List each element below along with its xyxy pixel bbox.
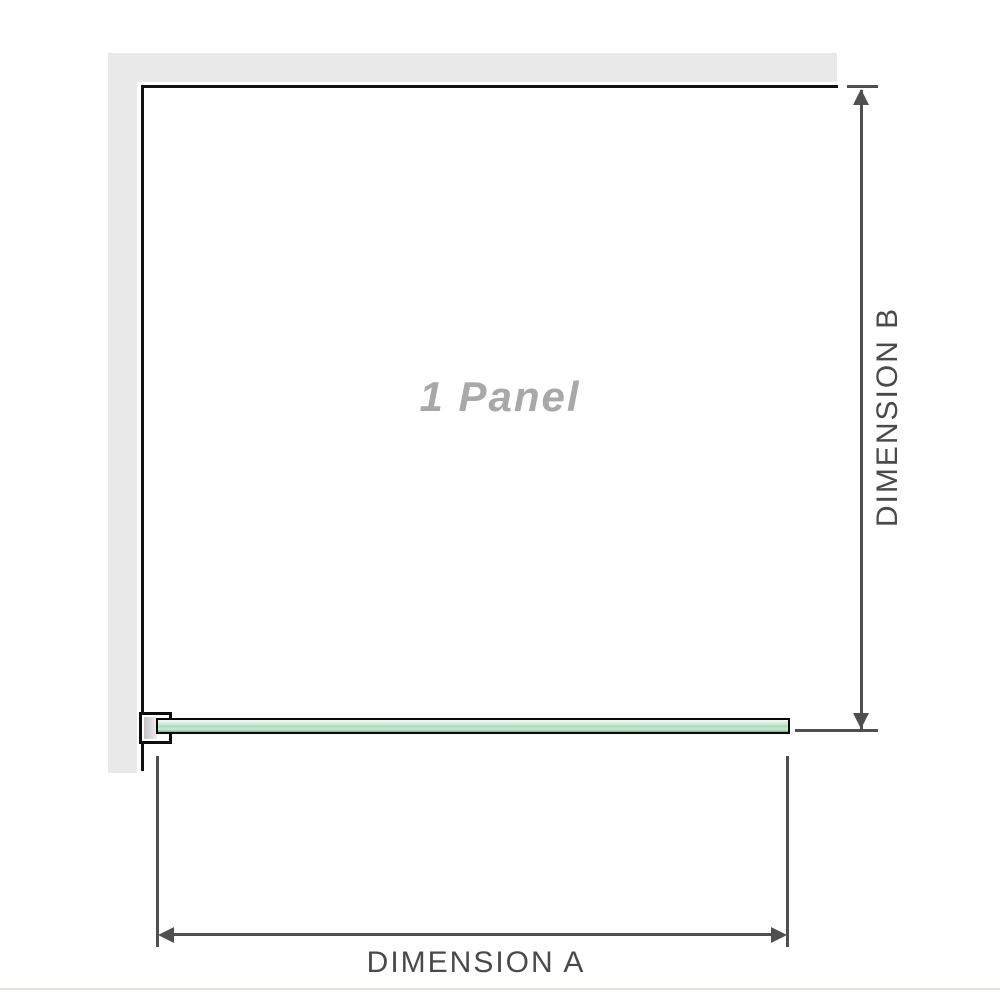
dimension-b-top-tick (847, 85, 878, 88)
arrow-down-icon (853, 713, 869, 729)
panel-diagram: 1 Panel DIMENSION B DIMENSION A (0, 0, 1000, 1000)
arrow-left-icon (158, 927, 174, 943)
image-baseline-rule (0, 988, 1000, 990)
dimension-a-line (162, 933, 783, 936)
dimension-a-label: DIMENSION A (367, 946, 586, 980)
wall-left-strip (108, 53, 137, 773)
dimension-b-bottom-tick (795, 729, 878, 732)
panel-count-label: 1 Panel (419, 373, 580, 421)
dimension-b-line (860, 90, 863, 730)
arrow-right-icon (771, 927, 787, 943)
panel-outline-left-edge (141, 85, 144, 771)
glass-panel-bar (156, 718, 790, 734)
dimension-b-label: DIMENSION B (871, 307, 905, 527)
dimension-a-right-extension (786, 756, 789, 947)
dimension-a-left-extension (156, 756, 159, 947)
panel-outline-top-edge (141, 85, 838, 88)
wall-top-strip (108, 53, 837, 82)
arrow-up-icon (853, 89, 869, 105)
